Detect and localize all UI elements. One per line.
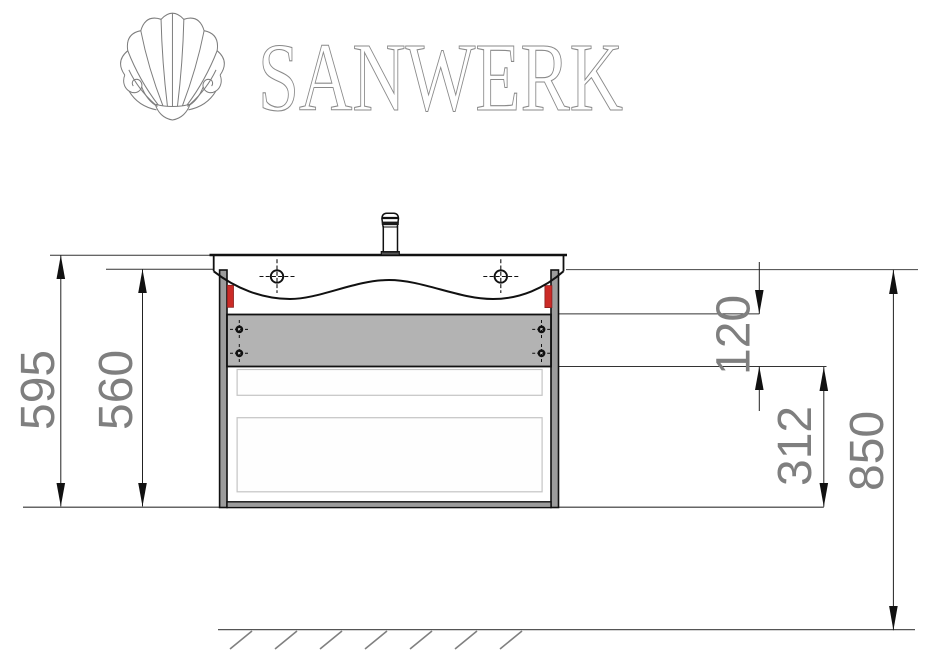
svg-text:312: 312 [769,406,822,486]
svg-text:SANWERK: SANWERK [258,24,623,131]
svg-text:560: 560 [90,350,143,430]
svg-text:120: 120 [708,295,761,375]
svg-text:595: 595 [12,350,65,430]
svg-text:850: 850 [841,411,894,491]
